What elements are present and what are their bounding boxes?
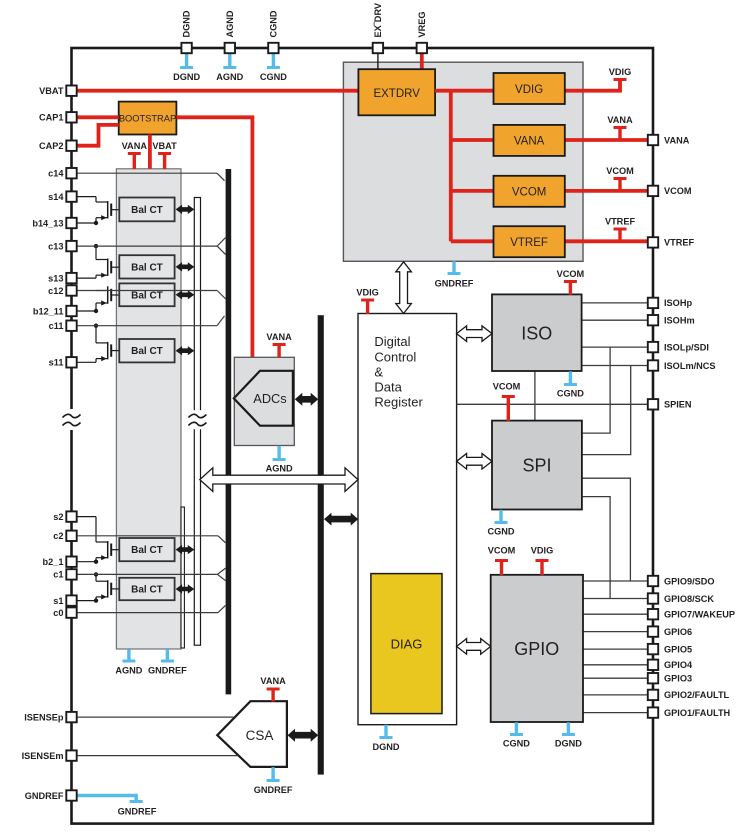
svg-text:VANA: VANA xyxy=(260,676,286,686)
svg-text:c14: c14 xyxy=(48,169,64,179)
svg-text:Bal CT: Bal CT xyxy=(131,585,163,596)
svg-text:Bal CT: Bal CT xyxy=(131,346,163,357)
svg-text:AGND: AGND xyxy=(115,666,142,676)
svg-text:c11: c11 xyxy=(49,321,64,331)
svg-text:DGND: DGND xyxy=(182,10,192,37)
svg-text:VCOM: VCOM xyxy=(493,382,521,392)
svg-text:c13: c13 xyxy=(48,241,63,251)
svg-text:CSA: CSA xyxy=(246,728,274,743)
svg-text:s2: s2 xyxy=(53,512,63,522)
svg-text:VCOM: VCOM xyxy=(557,269,585,279)
svg-text:ADCs: ADCs xyxy=(253,391,286,406)
svg-text:GPIO9/SDO: GPIO9/SDO xyxy=(664,576,715,586)
svg-text:VTREF: VTREF xyxy=(510,237,548,249)
svg-text:c1: c1 xyxy=(53,570,63,580)
svg-text:EX‾DRV: EX‾DRV xyxy=(373,2,383,37)
svg-text:VANA: VANA xyxy=(266,332,292,342)
svg-text:Control: Control xyxy=(374,349,416,364)
svg-text:s13: s13 xyxy=(48,273,63,283)
svg-text:ISO: ISO xyxy=(521,324,552,344)
svg-text:GPIO3: GPIO3 xyxy=(664,674,692,684)
svg-text:VREG: VREG xyxy=(417,11,427,37)
svg-text:VANA: VANA xyxy=(664,135,690,145)
svg-text:GPIO5: GPIO5 xyxy=(664,644,692,654)
svg-text:Bal CT: Bal CT xyxy=(131,205,163,216)
svg-text:GNDREF: GNDREF xyxy=(435,279,474,289)
svg-text:ISOLp/SDI: ISOLp/SDI xyxy=(664,342,709,352)
svg-text:c2: c2 xyxy=(53,531,63,541)
svg-text:EXTDRV: EXTDRV xyxy=(373,88,420,100)
svg-text:GNDREF: GNDREF xyxy=(148,666,187,676)
svg-text:VBAT: VBAT xyxy=(39,86,64,96)
svg-text:BOOTSTRAP: BOOTSTRAP xyxy=(119,114,176,124)
svg-text:DGND: DGND xyxy=(555,739,582,749)
svg-text:DGND: DGND xyxy=(372,742,399,752)
svg-text:VDIG: VDIG xyxy=(515,84,543,96)
svg-text:CAP1: CAP1 xyxy=(39,113,64,123)
svg-text:&: & xyxy=(374,364,383,379)
svg-text:ISENSEm: ISENSEm xyxy=(22,751,64,761)
svg-text:CAP2: CAP2 xyxy=(39,141,64,151)
svg-text:ISOLm/NCS: ISOLm/NCS xyxy=(664,361,716,371)
svg-text:GPIO7/WAKEUP: GPIO7/WAKEUP xyxy=(664,610,735,620)
svg-text:CGND: CGND xyxy=(487,527,514,537)
svg-text:CGND: CGND xyxy=(268,10,278,37)
svg-text:AGND: AGND xyxy=(216,72,243,82)
svg-text:b2_1: b2_1 xyxy=(43,557,64,567)
svg-text:VCOM: VCOM xyxy=(606,166,634,176)
svg-text:b14_13: b14_13 xyxy=(32,218,63,228)
svg-text:DIAG: DIAG xyxy=(391,637,423,652)
svg-text:CGND: CGND xyxy=(557,389,584,399)
svg-text:Digital: Digital xyxy=(374,334,410,349)
svg-text:GNDREF: GNDREF xyxy=(118,807,157,817)
svg-text:GPIO6: GPIO6 xyxy=(664,627,692,637)
svg-text:VDIG: VDIG xyxy=(609,67,631,77)
svg-text:AGND: AGND xyxy=(225,10,235,37)
svg-text:c0: c0 xyxy=(53,608,63,618)
svg-text:AGND: AGND xyxy=(266,464,293,474)
svg-text:SPI: SPI xyxy=(522,456,551,476)
svg-text:VCOM: VCOM xyxy=(512,187,547,199)
svg-text:CGND: CGND xyxy=(503,739,530,749)
svg-text:s14: s14 xyxy=(48,192,64,202)
svg-text:ISENSEp: ISENSEp xyxy=(24,712,64,722)
svg-text:VBAT: VBAT xyxy=(152,141,177,151)
svg-text:GNDREF: GNDREF xyxy=(25,791,64,801)
svg-text:GPIO4: GPIO4 xyxy=(664,660,693,670)
svg-text:Bal CT: Bal CT xyxy=(131,262,163,273)
svg-text:DGND: DGND xyxy=(173,72,200,82)
svg-text:ISOHp: ISOHp xyxy=(664,298,692,308)
svg-text:Register: Register xyxy=(374,395,423,410)
svg-text:GPIO2/FAULTL: GPIO2/FAULTL xyxy=(664,690,730,700)
svg-text:VANA: VANA xyxy=(607,115,633,125)
svg-text:VDIG: VDIG xyxy=(356,288,378,298)
svg-text:b12_11: b12_11 xyxy=(33,306,64,316)
svg-text:c12: c12 xyxy=(48,286,63,296)
svg-text:SPIEN: SPIEN xyxy=(664,400,692,410)
svg-text:VDIG: VDIG xyxy=(531,546,553,556)
svg-text:VANA: VANA xyxy=(122,141,148,151)
svg-text:VCOM: VCOM xyxy=(664,186,692,196)
svg-text:VCOM: VCOM xyxy=(488,546,516,556)
svg-text:GPIO: GPIO xyxy=(514,639,559,659)
svg-text:Data: Data xyxy=(374,380,402,395)
svg-text:s11: s11 xyxy=(49,358,64,368)
svg-text:GNDREF: GNDREF xyxy=(254,785,293,795)
svg-text:GPIO8/SCK: GPIO8/SCK xyxy=(664,594,714,604)
svg-text:VANA: VANA xyxy=(514,136,545,148)
svg-text:CGND: CGND xyxy=(260,72,287,82)
svg-text:GPIO1/FAULTH: GPIO1/FAULTH xyxy=(664,708,731,718)
svg-text:ISOHm: ISOHm xyxy=(664,316,695,326)
svg-text:Bal CT: Bal CT xyxy=(131,290,163,301)
svg-text:Bal CT: Bal CT xyxy=(131,545,163,556)
svg-text:VTREF: VTREF xyxy=(664,238,695,248)
svg-text:s1: s1 xyxy=(53,596,63,606)
svg-text:VTREF: VTREF xyxy=(605,217,636,227)
